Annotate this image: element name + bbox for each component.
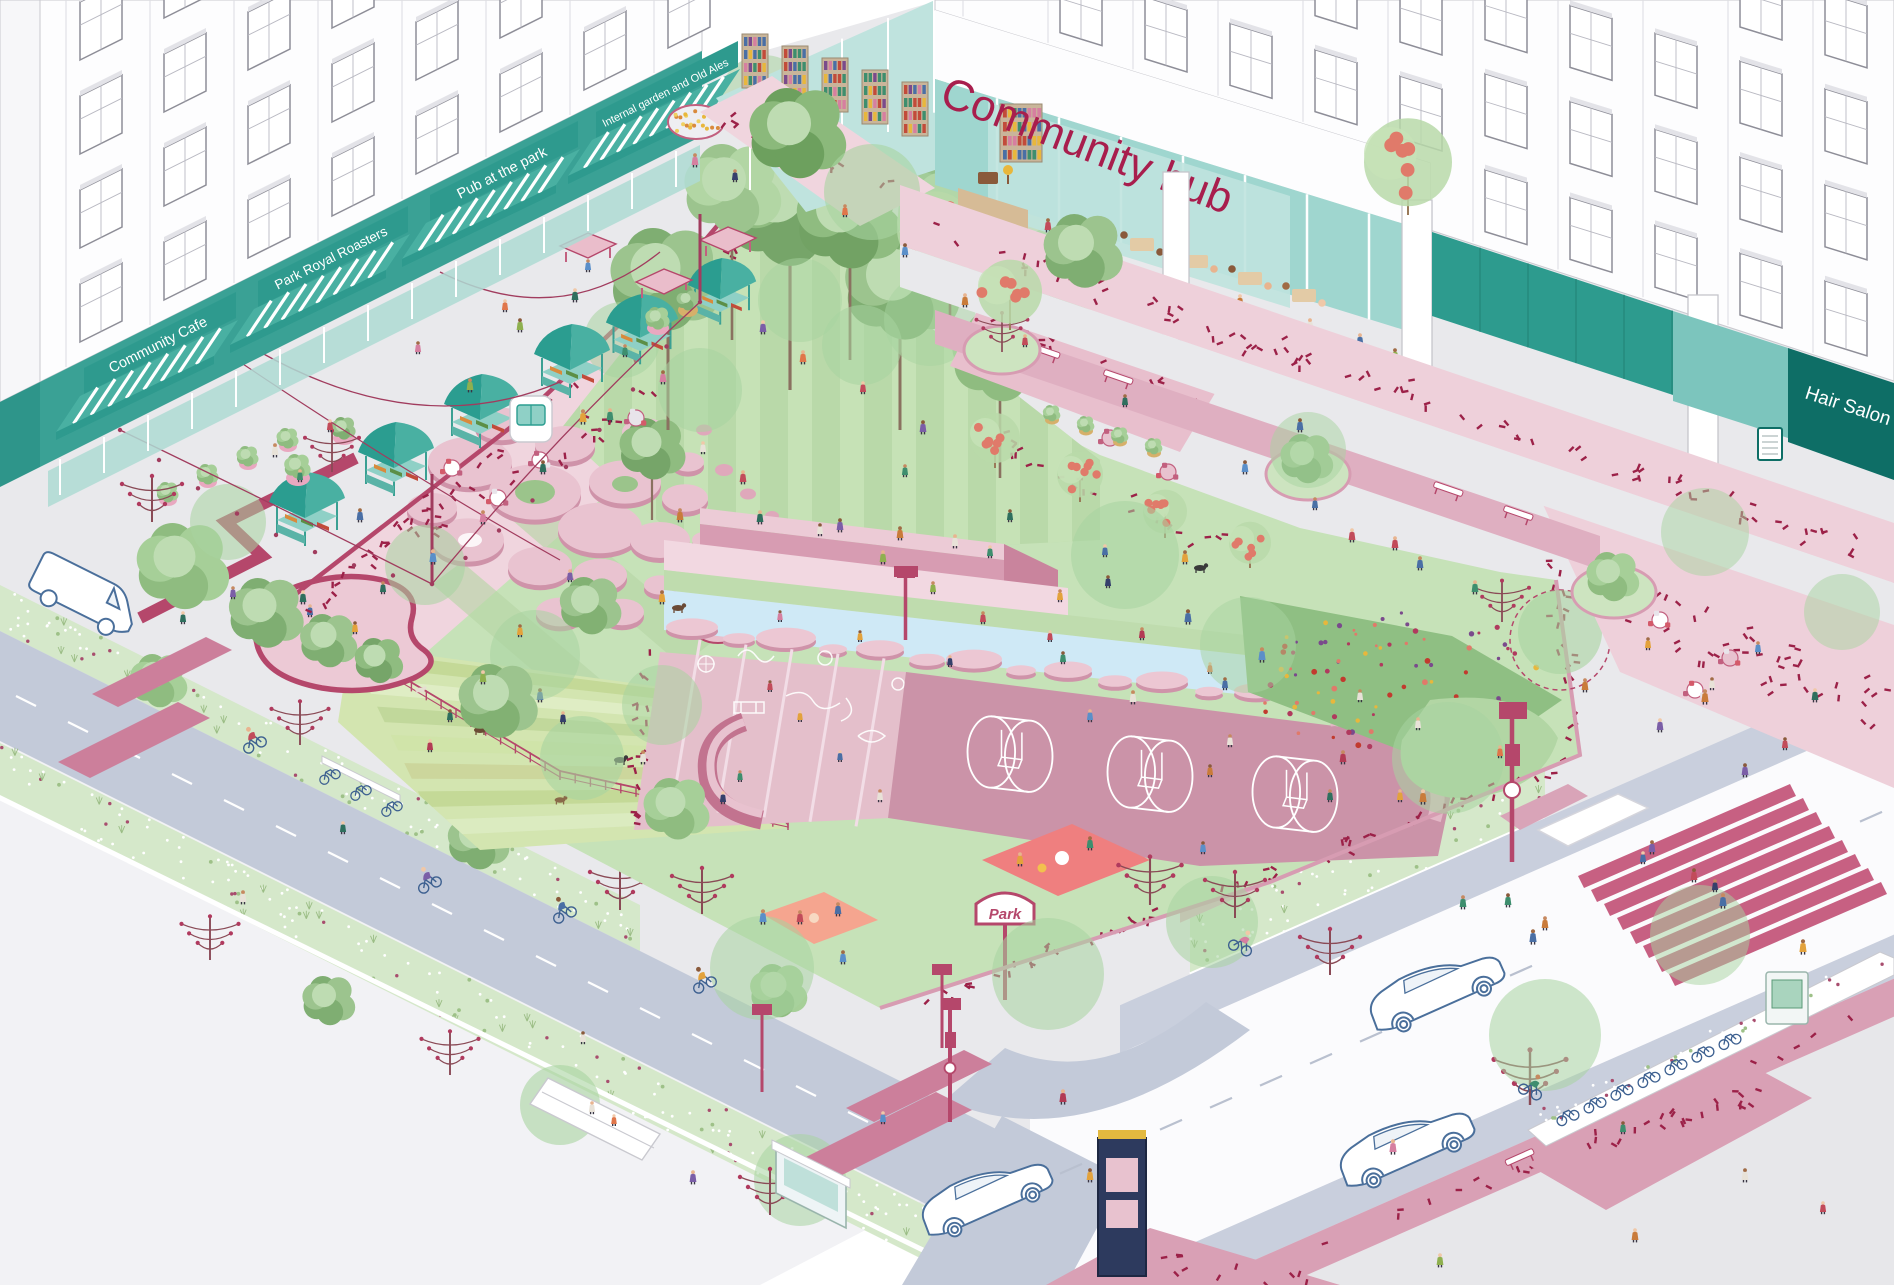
svg-text:Park: Park: [989, 906, 1022, 923]
